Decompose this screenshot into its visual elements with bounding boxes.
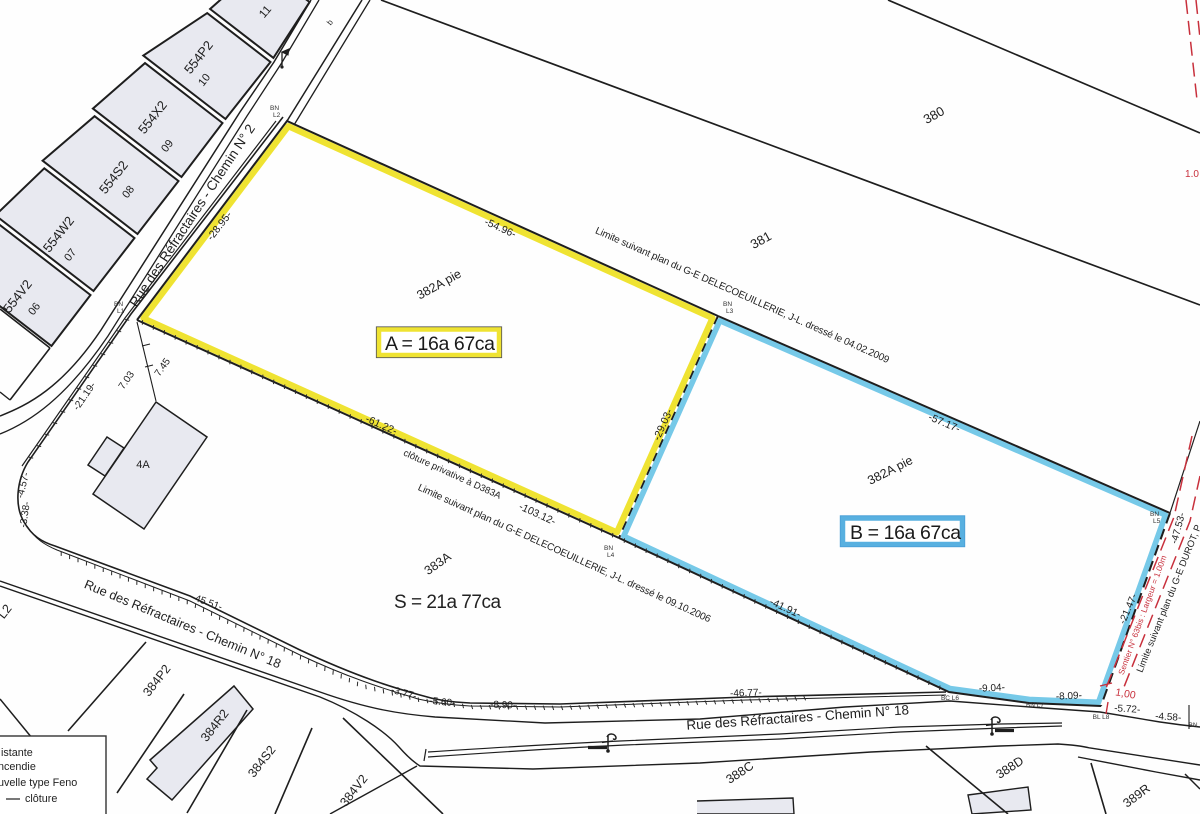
svg-text:L4: L4 xyxy=(607,552,615,559)
svg-text:istante: istante xyxy=(1,747,33,759)
svg-text:A = 16a 67ca: A = 16a 67ca xyxy=(385,333,495,355)
svg-text:uvelle type Feno: uvelle type Feno xyxy=(0,777,77,789)
svg-text:-8.90-: -8.90- xyxy=(490,700,516,712)
svg-text:L3: L3 xyxy=(726,308,734,315)
svg-text:L1: L1 xyxy=(117,308,125,315)
svg-text:-9.04-: -9.04- xyxy=(979,682,1006,694)
svg-text:BN: BN xyxy=(1150,511,1159,518)
svg-text:ncendie: ncendie xyxy=(0,761,36,773)
svg-text:-5.72-: -5.72- xyxy=(1114,703,1141,716)
svg-text:4A: 4A xyxy=(136,459,150,471)
svg-text:L2: L2 xyxy=(273,112,281,119)
svg-text:B = 16a 67ca: B = 16a 67ca xyxy=(850,522,961,544)
svg-text:L5: L5 xyxy=(1153,518,1161,525)
svg-text:-8.09-: -8.09- xyxy=(1056,690,1083,702)
svg-text:-46.77-: -46.77- xyxy=(730,687,762,699)
svg-text:BC L6: BC L6 xyxy=(941,695,959,702)
svg-text:-4.58-: -4.58- xyxy=(1155,711,1182,724)
svg-text:1.0: 1.0 xyxy=(1185,169,1199,180)
svg-text:BN L7: BN L7 xyxy=(1026,702,1044,709)
svg-text:BN: BN xyxy=(604,545,613,552)
svg-text:BN: BN xyxy=(270,105,279,112)
svg-text:clôture: clôture xyxy=(25,793,57,805)
svg-text:BN: BN xyxy=(1188,722,1197,729)
svg-text:BN: BN xyxy=(723,301,732,308)
svg-text:S = 21a 77ca: S = 21a 77ca xyxy=(394,592,501,613)
svg-text:BL L8: BL L8 xyxy=(1093,714,1110,721)
svg-text:BN: BN xyxy=(114,301,123,308)
